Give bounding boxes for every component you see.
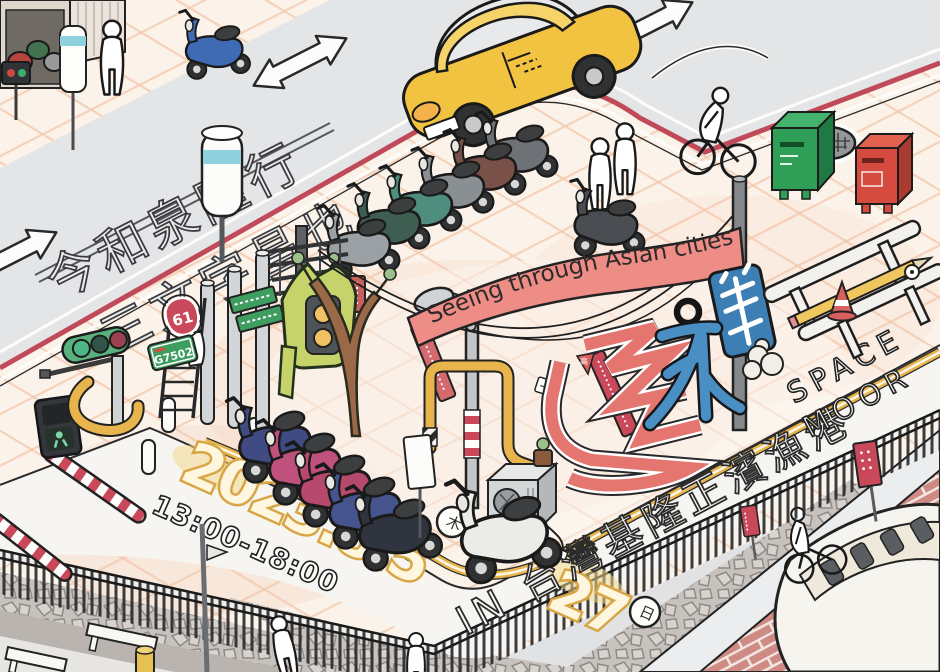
poster-illustration: 亞洲街角透視展 [0, 0, 940, 672]
planter-pot [534, 450, 552, 466]
pennant-left-text: 高 [580, 356, 588, 366]
yellow-bollard [136, 646, 154, 672]
person-walking [407, 633, 425, 672]
